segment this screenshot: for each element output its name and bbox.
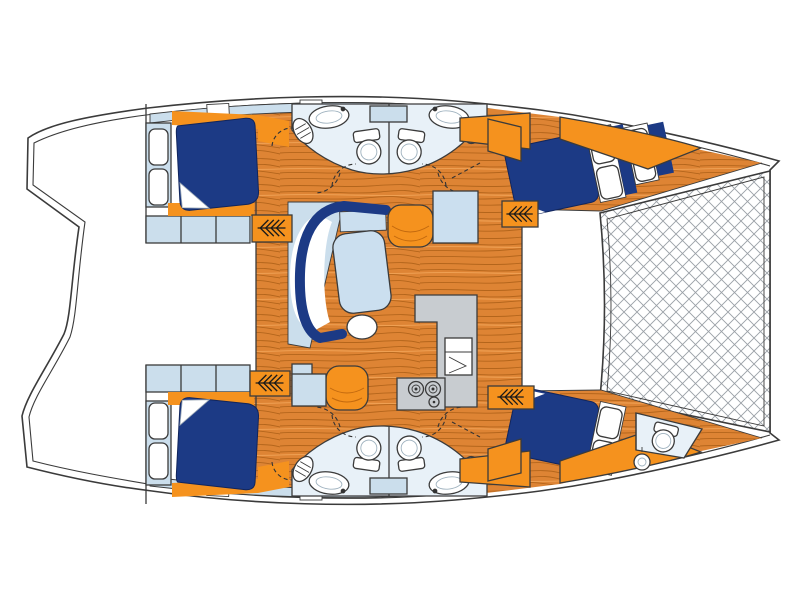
ottoman-lower: [326, 366, 368, 410]
oven-appliance: [445, 338, 472, 375]
companionway-steps-icon: [252, 215, 292, 242]
companionway-steps-icon: [488, 386, 534, 409]
stool: [347, 315, 377, 339]
companionway-steps-icon: [502, 201, 538, 227]
floorplan-canvas: [0, 0, 800, 600]
stove-burners-icon: [397, 378, 445, 410]
chart-seat: [433, 191, 478, 243]
catamaran-deck-plan: [0, 0, 800, 600]
wall-piece: [292, 374, 326, 406]
ottoman-upper: [388, 205, 433, 247]
coffee-table: [331, 229, 392, 315]
bow-trampoline-net: [600, 171, 770, 432]
companionway-steps-icon: [250, 371, 290, 396]
